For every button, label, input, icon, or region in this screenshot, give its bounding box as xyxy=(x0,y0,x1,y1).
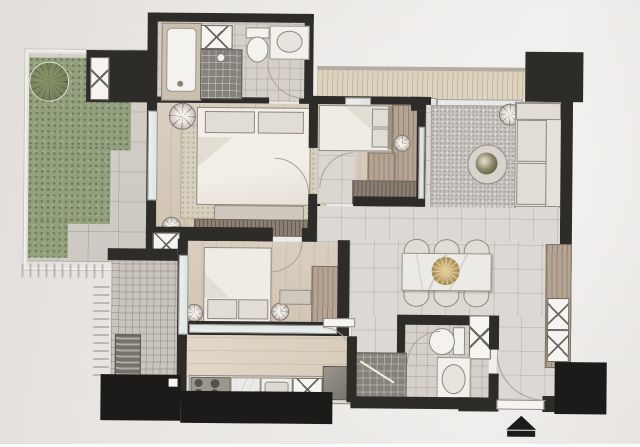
door-leaf xyxy=(323,318,355,327)
nightstand-lamp-icon xyxy=(169,103,196,130)
wall xyxy=(152,13,314,23)
garden-hedge xyxy=(29,99,131,150)
bedroom3-wardrobe xyxy=(311,266,340,324)
plant-icon xyxy=(475,152,497,174)
table-centerpiece-icon xyxy=(431,257,459,285)
wall-mass xyxy=(180,391,332,424)
corridor-floor xyxy=(351,314,399,354)
sofa-back xyxy=(545,103,561,221)
pillow xyxy=(207,299,237,319)
cabinet-x-panel xyxy=(547,330,569,362)
garden-hedge xyxy=(28,145,111,224)
sink-basin xyxy=(276,31,302,53)
shaft-x-icon xyxy=(469,315,491,359)
glass-door xyxy=(178,255,189,335)
tick-marks-row xyxy=(22,263,106,278)
sliding-door-glass xyxy=(418,127,425,199)
sofa-armrest xyxy=(516,103,561,120)
sofa-cushion xyxy=(517,120,547,162)
wall-notch xyxy=(169,379,178,387)
desk xyxy=(279,290,311,305)
entry-door-leaf xyxy=(496,400,544,410)
pillow xyxy=(258,111,304,133)
tree-icon xyxy=(29,61,69,101)
column xyxy=(554,362,606,414)
burner-icon xyxy=(195,379,203,387)
ac-unit xyxy=(115,334,141,376)
column xyxy=(525,52,583,103)
wall xyxy=(108,248,178,261)
wall xyxy=(397,315,471,326)
shower-head-icon xyxy=(216,53,225,62)
wall xyxy=(458,397,498,411)
north-arrow-icon xyxy=(506,416,536,438)
window xyxy=(147,110,158,200)
toilet-bowl xyxy=(246,36,268,62)
pillow xyxy=(238,299,268,319)
wall xyxy=(489,315,499,349)
tick-marks-column xyxy=(93,284,110,376)
pillow xyxy=(372,128,389,147)
pillow xyxy=(205,111,255,133)
garden-hedge xyxy=(28,219,68,257)
wall xyxy=(337,240,350,324)
hall-floor xyxy=(317,206,560,244)
sofa-cushion xyxy=(516,163,546,205)
shaft-x-icon xyxy=(201,25,233,49)
burner-icon xyxy=(211,379,220,388)
wall xyxy=(353,196,417,207)
cabinet-x-panel xyxy=(547,298,569,330)
bathtub-faucet-icon xyxy=(177,81,183,87)
window-strip xyxy=(189,324,337,334)
floor-plan-photo xyxy=(0,0,640,444)
ceiling-lamp-icon xyxy=(394,135,411,152)
shaft-x-icon xyxy=(90,57,109,100)
wall xyxy=(346,336,357,402)
floor-plan xyxy=(0,0,640,447)
pillow xyxy=(372,108,389,127)
sink-basin xyxy=(442,364,466,394)
bathroom2-shower xyxy=(354,352,406,400)
nightstand-lamp-icon xyxy=(271,303,289,321)
